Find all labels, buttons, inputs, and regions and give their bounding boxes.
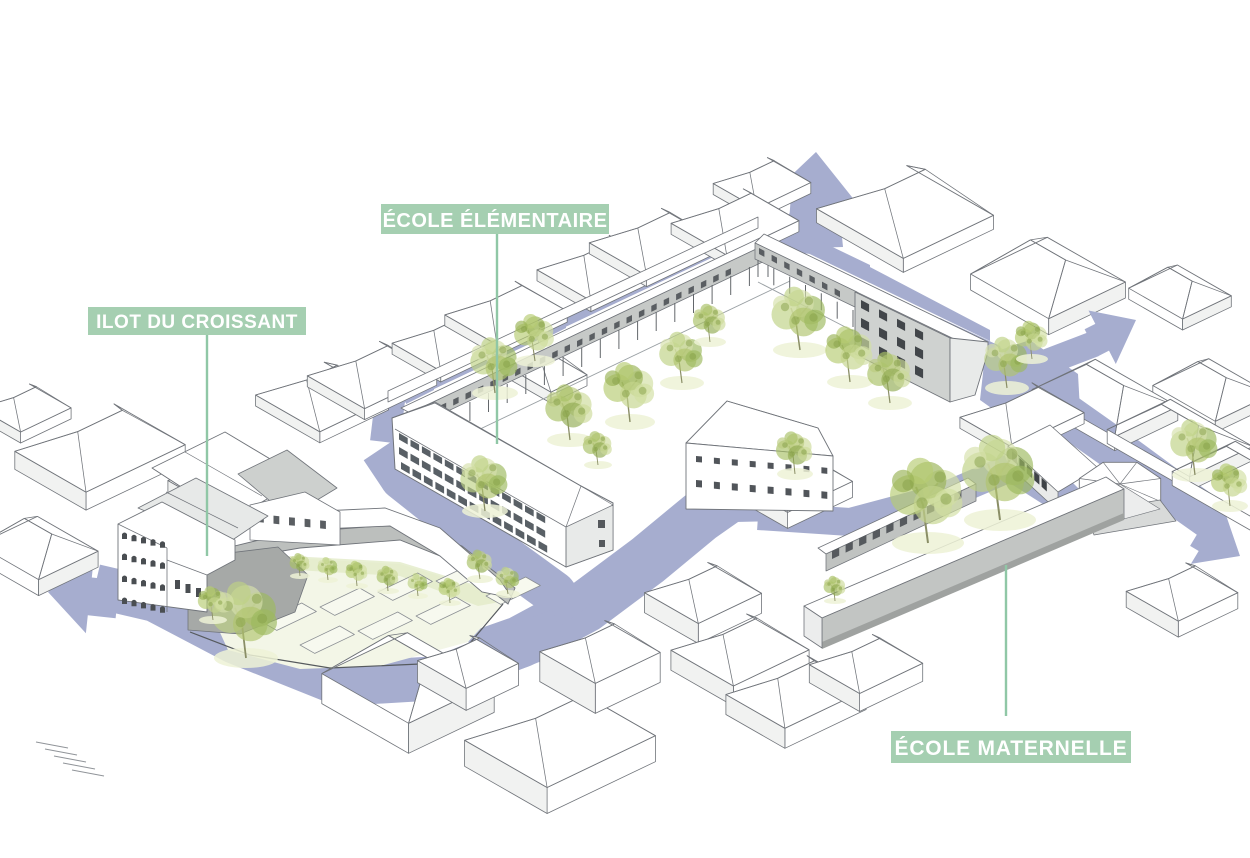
- svg-text:ILOT DU CROISSANT: ILOT DU CROISSANT: [96, 312, 298, 333]
- svg-text:ÉCOLE ÉLÉMENTAIRE: ÉCOLE ÉLÉMENTAIRE: [383, 209, 608, 232]
- svg-text:ÉCOLE MATERNELLE: ÉCOLE MATERNELLE: [895, 737, 1128, 760]
